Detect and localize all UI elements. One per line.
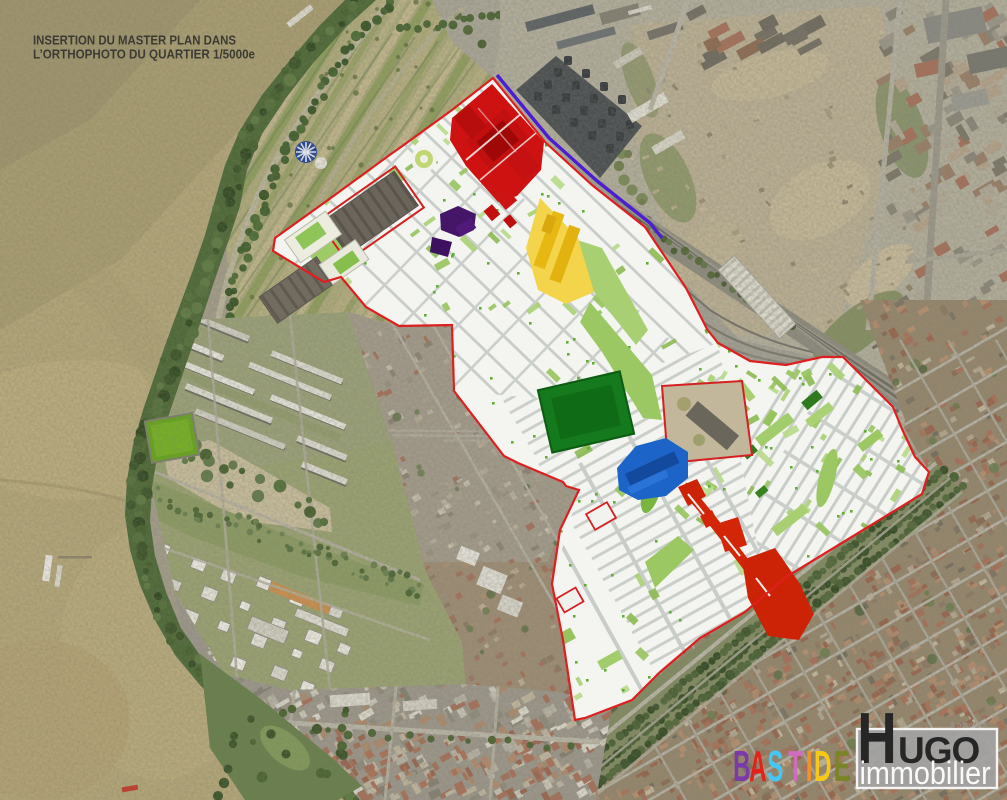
svg-text:E: E	[834, 741, 850, 791]
svg-text:A: A	[749, 741, 766, 791]
svg-text:D: D	[814, 741, 831, 791]
svg-text:T: T	[788, 741, 803, 791]
svg-text:L’ORTHOPHOTO DU QUARTIER 1/500: L’ORTHOPHOTO DU QUARTIER 1/5000e	[33, 47, 255, 61]
svg-text:& associés: & associés	[950, 720, 987, 729]
svg-text:S: S	[767, 741, 783, 791]
svg-text:B: B	[733, 741, 750, 791]
svg-text:INSERTION DU MASTER PLAN DANS: INSERTION DU MASTER PLAN DANS	[33, 34, 236, 48]
svg-text:I: I	[806, 741, 813, 791]
svg-text:immobilier: immobilier	[860, 756, 991, 792]
